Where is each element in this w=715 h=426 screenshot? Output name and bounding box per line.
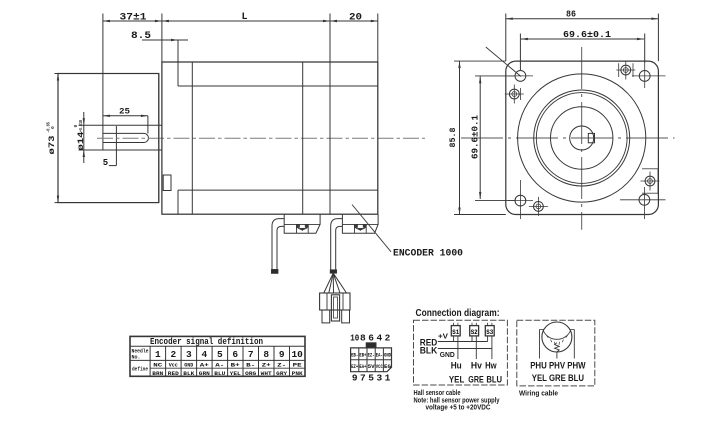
svg-text:20: 20 — [349, 13, 362, 24]
svg-text:5: 5 — [103, 158, 108, 168]
svg-text:86: 86 — [566, 10, 576, 20]
svg-text:Z-: Z- — [277, 363, 286, 369]
svg-text:ORG: ORG — [245, 370, 257, 377]
svg-text:GND: GND — [440, 352, 455, 359]
svg-text:7: 7 — [248, 349, 254, 360]
svg-text:Hv: Hv — [471, 361, 482, 371]
svg-text:BLK: BLK — [420, 346, 438, 357]
svg-text:1: 1 — [385, 373, 391, 384]
svg-text:Hall sensor cable: Hall sensor cable — [414, 390, 461, 397]
svg-text:voltage +5 to +20VDC: voltage +5 to +20VDC — [426, 405, 491, 412]
svg-text:EZ-: EZ- — [368, 352, 375, 358]
svg-text:1: 1 — [155, 349, 161, 360]
svg-text:BLU: BLU — [486, 375, 502, 385]
svg-text:5: 5 — [217, 349, 223, 360]
svg-text:25: 25 — [119, 108, 130, 117]
svg-text:2: 2 — [385, 333, 391, 344]
svg-text:define: define — [132, 366, 149, 373]
svg-text:RED: RED — [168, 370, 180, 377]
svg-text:2: 2 — [170, 349, 176, 360]
svg-text:S3: S3 — [486, 329, 493, 336]
svg-text:PE: PE — [293, 363, 302, 369]
svg-text:5V: 5V — [368, 364, 376, 370]
svg-text:3: 3 — [186, 349, 192, 360]
svg-text:B+: B+ — [231, 363, 240, 369]
svg-text:EZ+: EZ+ — [351, 364, 358, 370]
svg-text:A-: A- — [215, 363, 224, 369]
svg-text:10: 10 — [350, 333, 359, 344]
svg-text:EA+: EA+ — [359, 364, 366, 370]
svg-text:+V: +V — [438, 334, 448, 341]
svg-text:GRY: GRY — [276, 370, 288, 377]
svg-text:EG: EG — [384, 364, 391, 370]
svg-text:GRN: GRN — [199, 370, 210, 377]
svg-text:BRN: BRN — [152, 370, 163, 377]
svg-text:GRE: GRE — [468, 375, 483, 385]
svg-text:6: 6 — [232, 349, 238, 360]
svg-text:4: 4 — [201, 349, 207, 360]
svg-text:8: 8 — [360, 333, 366, 344]
svg-text:B-: B- — [246, 363, 255, 369]
svg-text:BLU: BLU — [214, 370, 225, 377]
svg-text:L: L — [241, 12, 247, 23]
svg-text:-0.05: -0.05 — [46, 122, 52, 133]
svg-text:69.6±0.1: 69.6±0.1 — [563, 29, 611, 40]
svg-text:10: 10 — [291, 349, 303, 360]
svg-text:YEL: YEL — [449, 375, 465, 385]
svg-text:Wiring cable: Wiring cable — [519, 390, 558, 397]
svg-text:NC: NC — [153, 363, 162, 369]
svg-text:EA-: EA- — [376, 352, 383, 358]
svg-text:BLK: BLK — [183, 370, 195, 377]
svg-text:8: 8 — [263, 349, 269, 360]
svg-text:A+: A+ — [200, 363, 209, 369]
svg-text:Hw: Hw — [485, 361, 497, 371]
svg-text:69.6±0.1: 69.6±0.1 — [471, 114, 481, 159]
svg-text:3: 3 — [376, 373, 382, 384]
svg-text:No.: No. — [132, 354, 141, 360]
svg-text:5: 5 — [368, 373, 374, 384]
svg-text:S1: S1 — [452, 329, 459, 336]
svg-text:Hu: Hu — [451, 361, 462, 371]
svg-text:Encoder signal definition: Encoder signal definition — [150, 336, 263, 347]
svg-text:GND: GND — [184, 363, 193, 369]
svg-text:4: 4 — [376, 333, 382, 344]
svg-text:Vcc: Vcc — [169, 363, 178, 369]
svg-text:0: 0 — [73, 124, 79, 127]
svg-text:7: 7 — [360, 373, 366, 384]
svg-text:Connection diagram:: Connection diagram: — [416, 307, 500, 319]
svg-text:ENCODER 1000: ENCODER 1000 — [393, 249, 463, 260]
svg-text:9: 9 — [279, 349, 285, 360]
svg-text:Z+: Z+ — [262, 363, 271, 369]
svg-text:EB+: EB+ — [359, 352, 366, 358]
svg-text:S2: S2 — [471, 329, 478, 336]
svg-text:PHU PHV PHW: PHU PHV PHW — [530, 360, 586, 370]
svg-text:9: 9 — [352, 373, 358, 384]
svg-text:ø73: ø73 — [48, 135, 57, 154]
svg-text:YEL GRE BLU: YEL GRE BLU — [532, 373, 584, 383]
svg-text:85.8: 85.8 — [448, 128, 458, 148]
svg-text:Note: hall sensor power supply: Note: hall sensor power supply — [414, 397, 500, 404]
svg-text:WHT: WHT — [261, 370, 273, 377]
svg-text:37±1: 37±1 — [120, 13, 147, 24]
svg-text:ø14: ø14 — [77, 131, 86, 150]
svg-text:PNK: PNK — [292, 370, 304, 377]
svg-text:6: 6 — [368, 333, 374, 344]
svg-text:EB-: EB- — [351, 352, 358, 358]
svg-text:VCC: VCC — [376, 364, 383, 370]
svg-text:GND: GND — [384, 352, 391, 358]
svg-text:YEL: YEL — [230, 370, 242, 377]
